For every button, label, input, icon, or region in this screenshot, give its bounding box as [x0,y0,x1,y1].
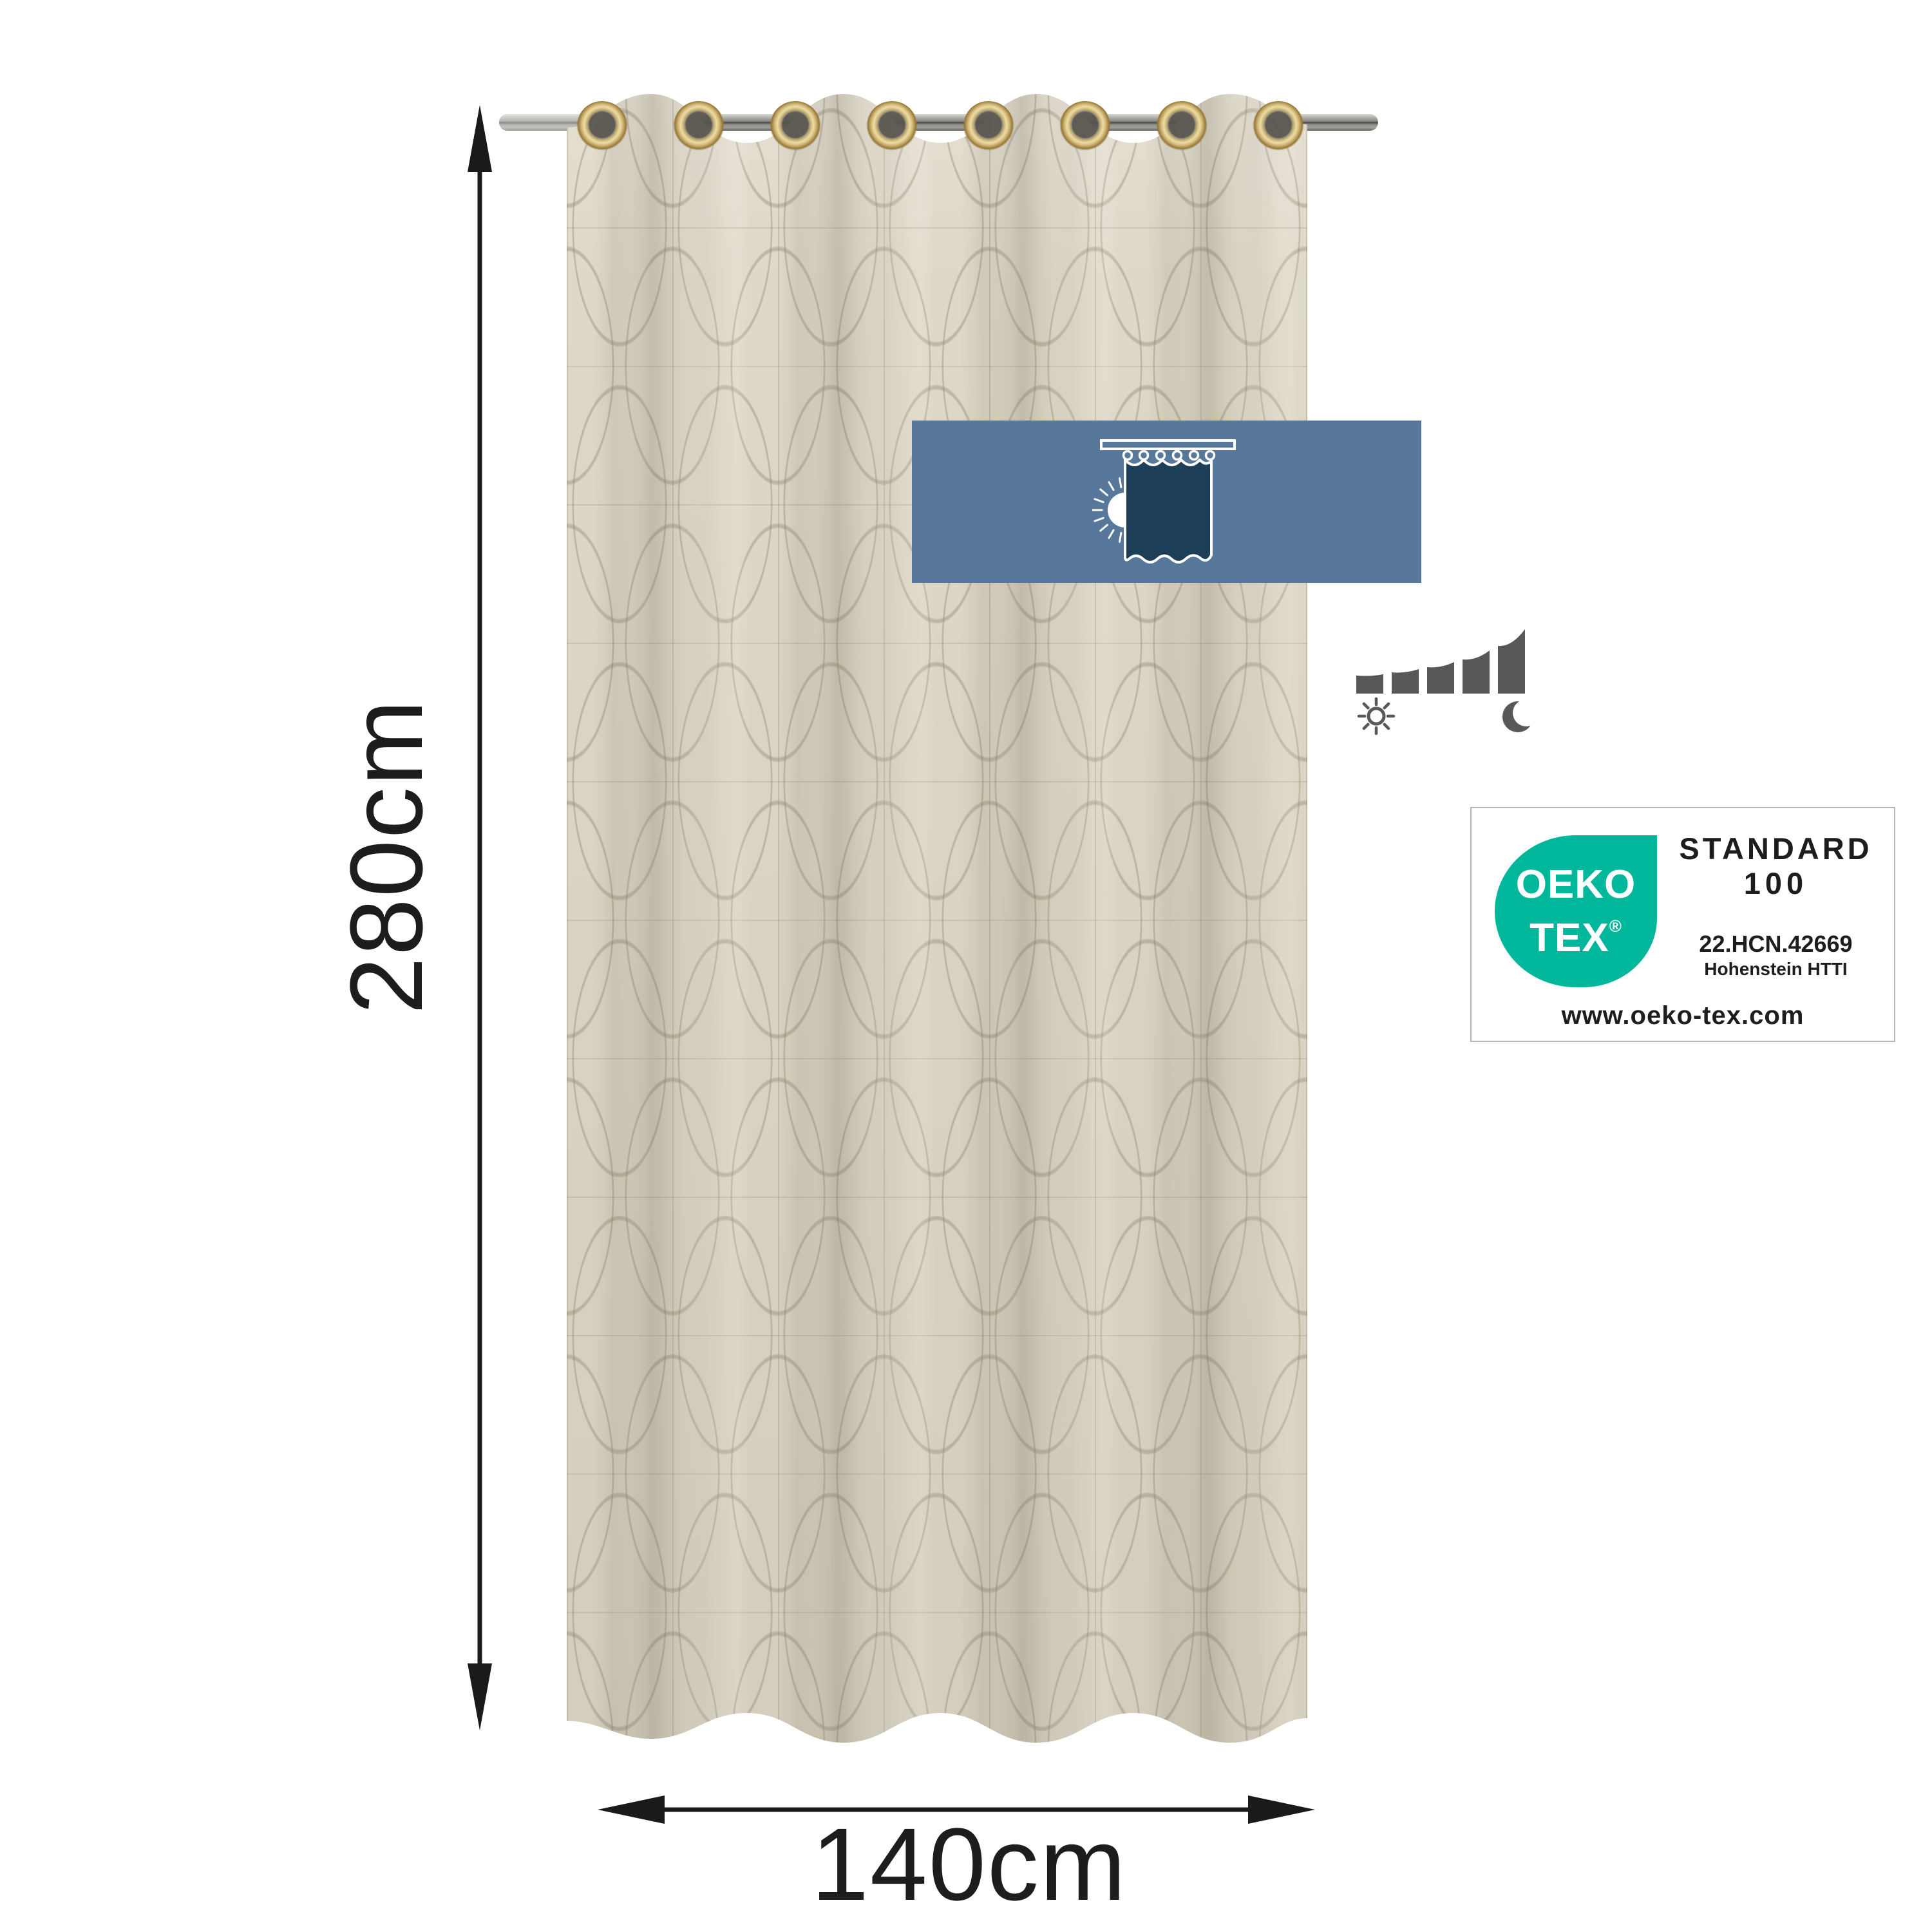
curtain-fabric [567,89,1307,1745]
grommet-eyelet [1156,101,1207,153]
product-image: 280cm 140cm [0,0,1932,1932]
grommet-eyelet [866,101,918,153]
width-dimension-label: 140cm [811,1805,1127,1924]
sun-icon [1359,699,1394,734]
grommet-eyelet [963,101,1014,153]
grommet-eyelet [1059,101,1111,153]
height-dimension-arrow [451,100,509,1736]
certificate-text-block: STANDARD 100 22.HCN.42669 Hohenstein HTT… [1662,831,1890,981]
certificate-website: www.oeko-tex.com [1472,1001,1894,1030]
certificate-100: 100 [1662,866,1890,901]
light-dimming-scale [1352,621,1546,744]
oeko-tex-logo: OEKO TEX® [1495,835,1657,987]
curtain-panel-glyph [1125,460,1211,562]
grommet-eyelet [673,101,724,153]
oeko-tex-logo-line1: OEKO [1516,864,1636,905]
dimming-bars [1356,629,1525,694]
certificate-standard: STANDARD [1662,831,1890,866]
grommet-eyelet [1253,101,1304,153]
feature-banner [912,421,1421,583]
oeko-tex-logo-line2: TEX® [1529,905,1622,959]
oeko-tex-certificate-label: OEKO TEX® STANDARD 100 22.HCN.42669 Hohe… [1470,807,1895,1042]
certificate-number: 22.HCN.42669 [1662,931,1890,958]
moon-icon [1502,699,1540,732]
registered-mark: ® [1609,916,1622,936]
grommet-eyelet [576,101,628,153]
height-dimension-label: 280cm [327,699,446,1014]
curtain-blocking-light-icon [1092,431,1244,573]
grommet-eyelet [770,101,821,153]
certificate-institute: Hohenstein HTTI [1662,958,1890,981]
